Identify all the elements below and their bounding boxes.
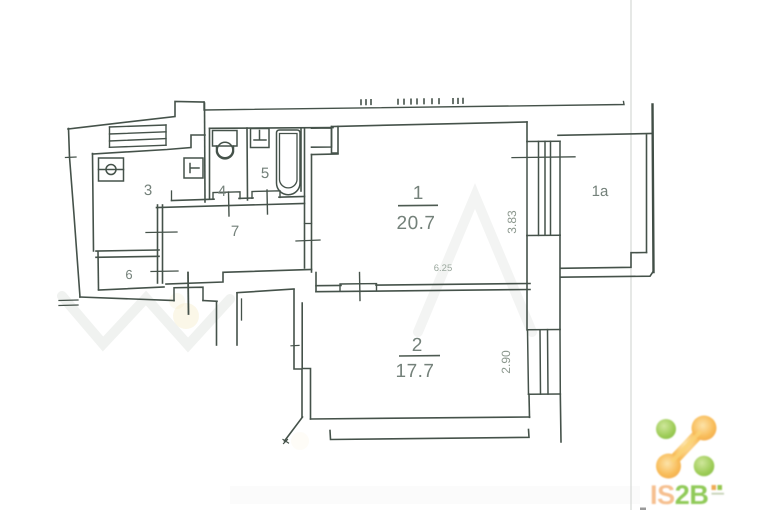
svg-text:2.90: 2.90	[499, 350, 513, 374]
svg-text:7: 7	[231, 223, 239, 240]
svg-text:3.83: 3.83	[505, 210, 519, 234]
svg-text:4: 4	[218, 183, 226, 200]
svg-text:3: 3	[144, 182, 152, 199]
svg-text:1a: 1a	[592, 183, 609, 200]
svg-text:6: 6	[125, 267, 132, 282]
svg-text:2: 2	[412, 335, 423, 356]
svg-text:5: 5	[261, 165, 269, 182]
svg-text:IS2B: IS2B	[650, 480, 708, 510]
svg-text:20.7: 20.7	[397, 213, 436, 234]
svg-text:1: 1	[413, 183, 424, 204]
svg-text:6.25: 6.25	[434, 263, 453, 274]
svg-text:17.7: 17.7	[396, 361, 435, 382]
